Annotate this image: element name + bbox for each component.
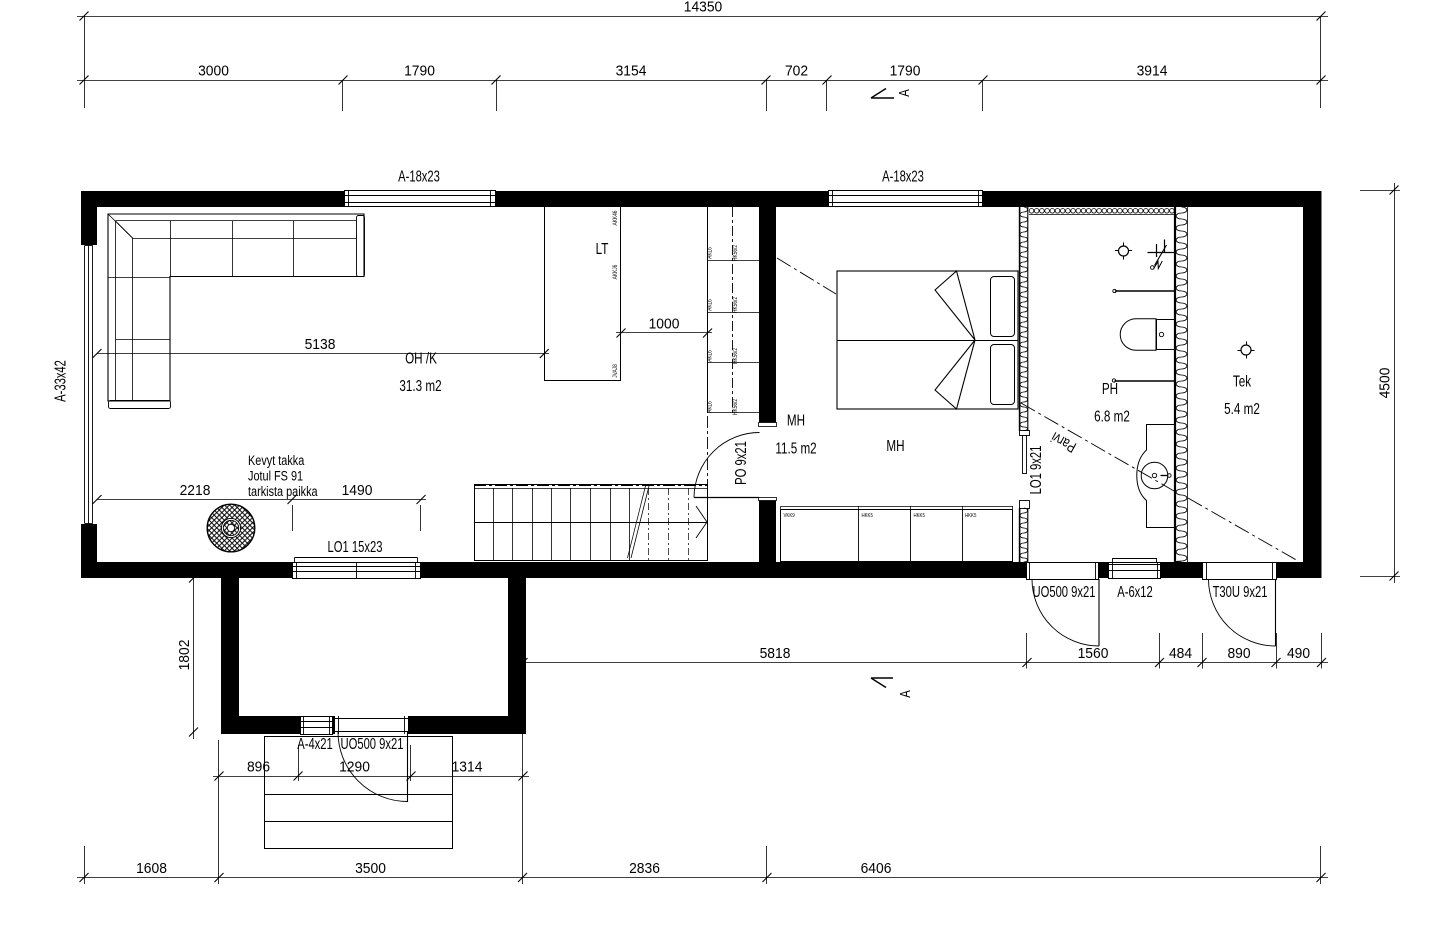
svg-text:2218: 2218 — [180, 483, 211, 499]
svg-text:AKL6: AKL6 — [707, 247, 714, 259]
svg-text:484: 484 — [1169, 646, 1192, 662]
svg-text:3154: 3154 — [616, 63, 647, 79]
svg-text:1790: 1790 — [890, 63, 921, 79]
svg-text:PH: PH — [1102, 379, 1118, 397]
svg-text:1608: 1608 — [136, 861, 167, 877]
svg-text:6406: 6406 — [861, 861, 892, 877]
svg-text:1000: 1000 — [649, 316, 680, 332]
svg-text:HK56/2: HK56/2 — [732, 297, 739, 313]
svg-text:HKK5: HKK5 — [914, 513, 926, 520]
svg-text:HK56/2: HK56/2 — [732, 348, 739, 364]
svg-text:11.5 m2: 11.5 m2 — [775, 439, 816, 457]
svg-text:tarkista paikka: tarkista paikka — [248, 484, 318, 500]
svg-text:A-18x23: A-18x23 — [398, 168, 440, 185]
svg-text:5.4 m2: 5.4 m2 — [1224, 399, 1260, 417]
svg-text:LO1 15x23: LO1 15x23 — [328, 538, 383, 555]
svg-text:HK56/2: HK56/2 — [732, 245, 739, 261]
svg-text:1490: 1490 — [342, 483, 373, 499]
svg-text:A-4x21: A-4x21 — [297, 735, 333, 752]
svg-text:MH: MH — [886, 436, 904, 454]
svg-text:2836: 2836 — [629, 861, 660, 877]
svg-text:31.3 m2: 31.3 m2 — [399, 376, 441, 394]
svg-text:AKL6: AKL6 — [707, 350, 714, 362]
svg-text:Kevyt takka: Kevyt takka — [248, 453, 304, 469]
svg-text:Jotul FS 91: Jotul FS 91 — [248, 468, 303, 484]
svg-text:5818: 5818 — [760, 646, 791, 662]
svg-text:896: 896 — [247, 759, 270, 775]
svg-text:AKK46: AKK46 — [612, 211, 619, 226]
svg-text:HKK5: HKK5 — [862, 513, 874, 520]
svg-text:PO 9x21: PO 9x21 — [732, 441, 749, 485]
svg-text:1790: 1790 — [404, 63, 435, 79]
svg-text:890: 890 — [1227, 646, 1250, 662]
svg-text:A-33x42: A-33x42 — [52, 360, 69, 402]
svg-text:1290: 1290 — [339, 759, 370, 775]
svg-text:3500: 3500 — [355, 861, 386, 877]
svg-text:HKK5: HKK5 — [965, 513, 977, 520]
svg-text:1314: 1314 — [452, 759, 483, 775]
svg-text:VKK9: VKK9 — [784, 513, 795, 520]
svg-text:AKL6: AKL6 — [707, 299, 714, 311]
svg-text:6.8 m2: 6.8 m2 — [1094, 407, 1130, 425]
svg-text:JVAJ8: JVAJ8 — [612, 364, 619, 377]
svg-text:A: A — [896, 690, 913, 698]
svg-text:702: 702 — [785, 63, 808, 79]
svg-text:A: A — [895, 89, 912, 97]
svg-text:MH: MH — [787, 411, 805, 429]
svg-text:UO500 9x21: UO500 9x21 — [340, 735, 403, 752]
svg-text:1560: 1560 — [1078, 646, 1109, 662]
svg-text:LO1 9x21: LO1 9x21 — [1027, 446, 1044, 495]
svg-text:HK56/2: HK56/2 — [732, 399, 739, 415]
svg-text:AKL6: AKL6 — [707, 401, 714, 413]
svg-text:OH /K: OH /K — [405, 349, 437, 367]
svg-text:A-18x23: A-18x23 — [882, 168, 924, 185]
svg-text:4500: 4500 — [1377, 368, 1393, 399]
svg-text:UO500 9x21: UO500 9x21 — [1032, 583, 1095, 600]
svg-text:5138: 5138 — [305, 337, 336, 353]
svg-text:3914: 3914 — [1137, 63, 1168, 79]
svg-text:1802: 1802 — [177, 640, 193, 671]
svg-text:3000: 3000 — [198, 63, 229, 79]
svg-text:Tek: Tek — [1233, 372, 1252, 390]
svg-text:14350: 14350 — [684, 0, 723, 16]
svg-text:T30U 9x21: T30U 9x21 — [1213, 583, 1268, 600]
svg-text:A-6x12: A-6x12 — [1117, 583, 1153, 600]
svg-text:LT: LT — [596, 239, 609, 257]
svg-text:AKKJ6: AKKJ6 — [612, 265, 619, 280]
svg-text:490: 490 — [1287, 646, 1310, 662]
